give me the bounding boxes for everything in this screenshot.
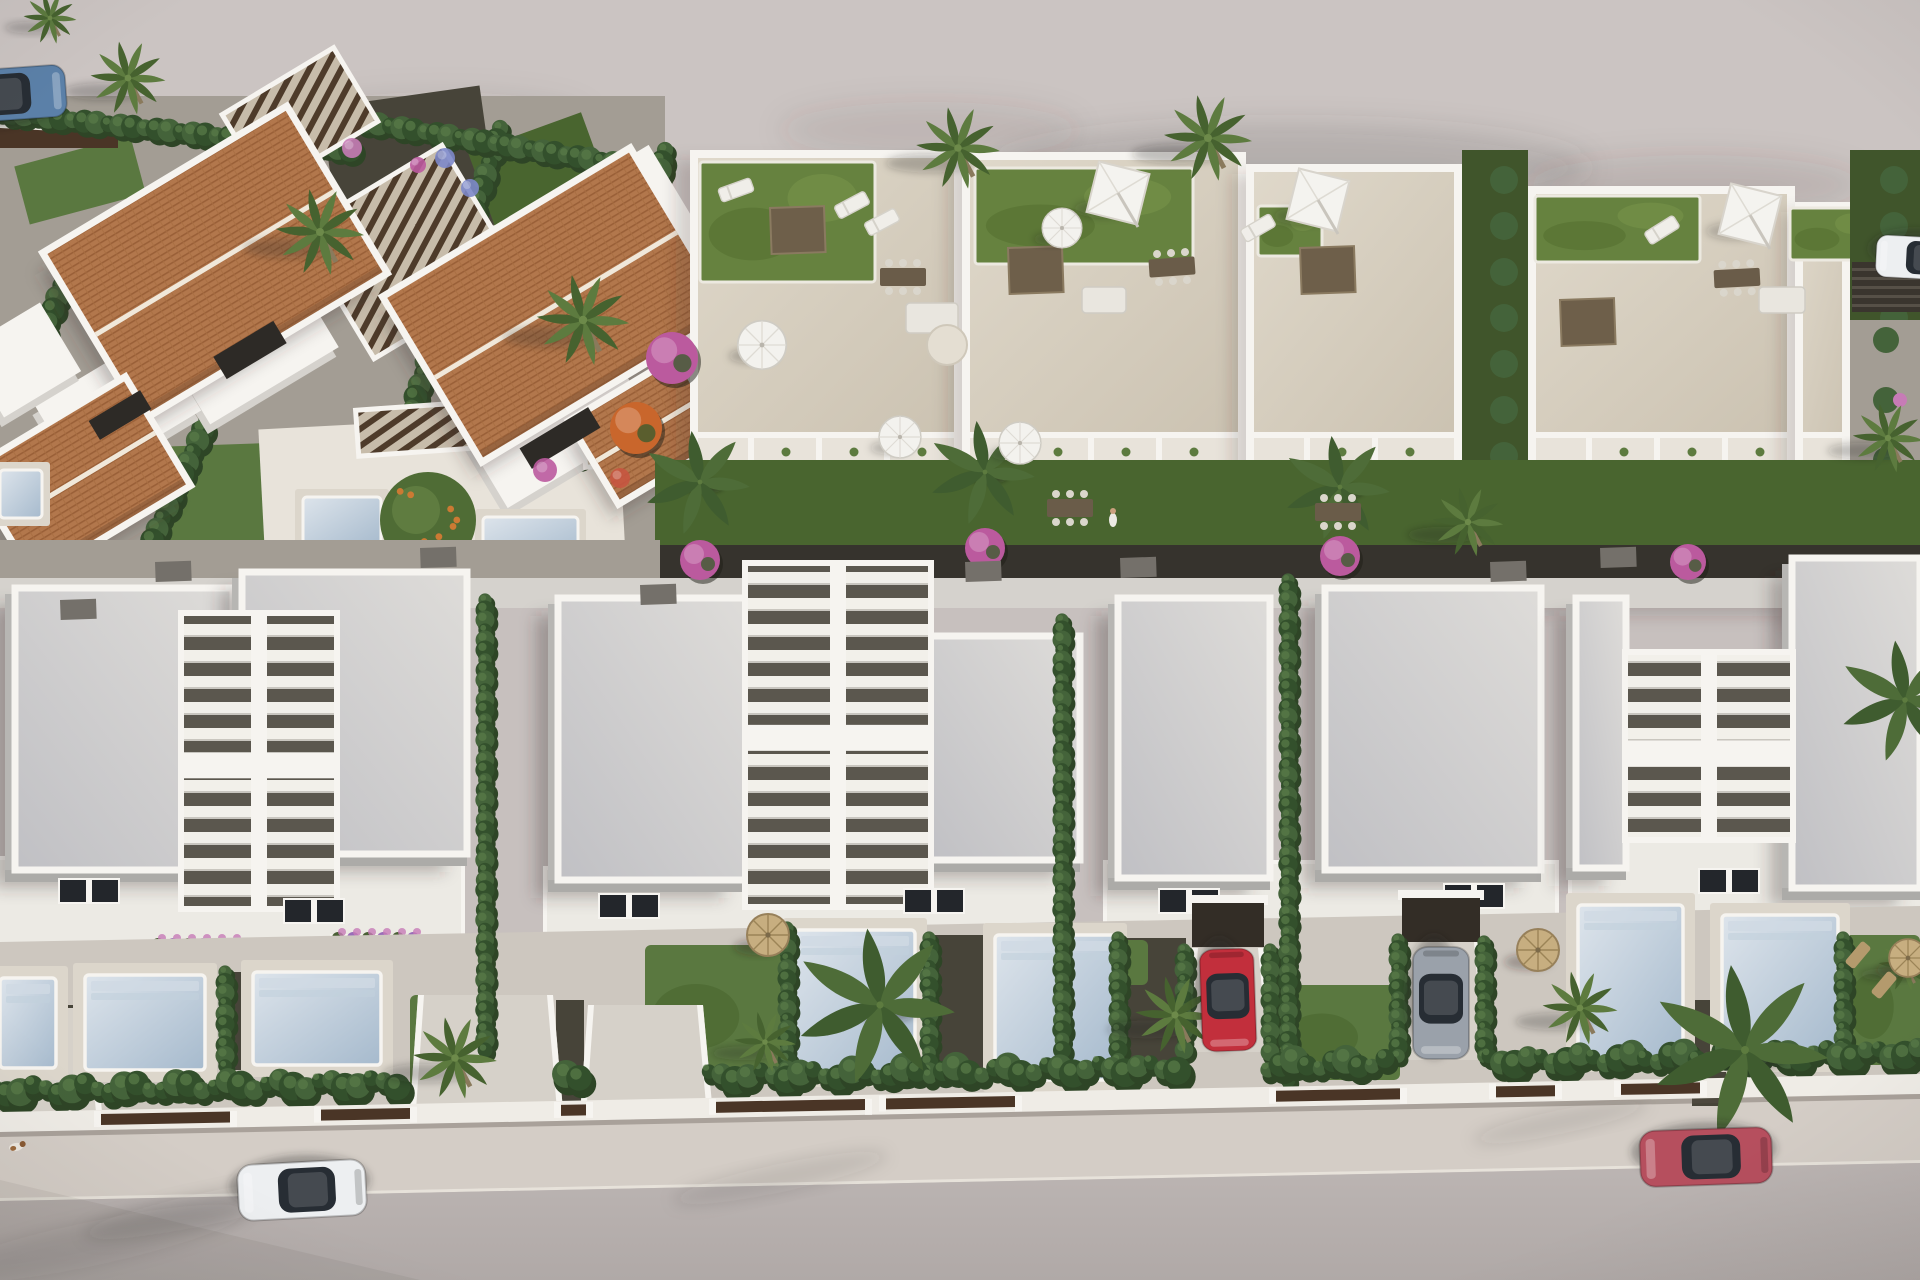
vignette-overlay: [0, 0, 1920, 1280]
render-canvas: [0, 0, 1920, 1280]
aerial-development-render: [0, 0, 1920, 1280]
